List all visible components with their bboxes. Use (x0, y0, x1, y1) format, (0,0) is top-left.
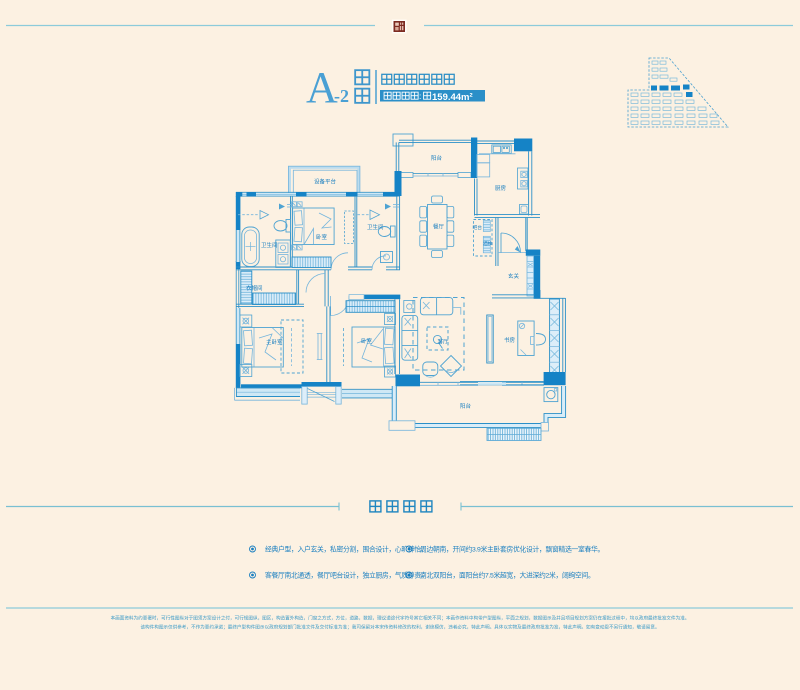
svg-text:经典户型，入户玄关，私密分割，围合设计，心旷神怡。: 经典户型，入户玄关，私密分割，围合设计，心旷神怡。 (265, 545, 427, 554)
svg-text:该构件构图示仅供参考，不作为要约承诺；最终户型构件图示以政府: 该构件构图示仅供参考，不作为要约承诺；最终户型构件图示以政府规划部门批准文件及交… (140, 624, 659, 631)
svg-text:酒柚: 酒柚 (483, 240, 493, 247)
svg-text:卧室: 卧室 (361, 337, 373, 345)
svg-text:-2: -2 (334, 86, 349, 106)
svg-text:南北双阳台，面阳台约7.5米超宽，大进深约2米，阔绚空间。: 南北双阳台，面阳台约7.5米超宽，大进深约2米，阔绚空间。 (420, 571, 594, 580)
svg-text::: : (419, 91, 421, 101)
svg-text:阳台: 阳台 (460, 402, 472, 410)
svg-text:周边朝南，开间约3.9米主卧套房优化设计，飘窗精选一室春华。: 周边朝南，开间约3.9米主卧套房优化设计，飘窗精选一室春华。 (420, 545, 604, 554)
svg-text:客厅: 客厅 (438, 338, 450, 346)
svg-text:客餐厅南北通透，餐厅吧台设计，独立厨房，气质尊贵。: 客餐厅南北通透，餐厅吧台设计，独立厨房，气质尊贵。 (265, 571, 427, 580)
svg-text:餐厅: 餐厅 (433, 223, 445, 231)
svg-text:厨房: 厨房 (495, 184, 507, 192)
svg-text:衣帽间: 衣帽间 (246, 284, 263, 292)
svg-text:玄关: 玄关 (508, 272, 520, 280)
svg-text:本画面资料为约要署时，可行性图纵对于图须方案设计之付，可行规: 本画面资料为约要署时，可行性图纵对于图须方案设计之付，可行规图纵，图区，构造置外… (111, 615, 690, 622)
svg-text:卧室: 卧室 (316, 233, 328, 241)
svg-text:卫生间: 卫生间 (261, 241, 278, 249)
svg-text:设备平台: 设备平台 (314, 178, 337, 186)
svg-text:卫生间: 卫生间 (367, 223, 384, 231)
svg-text:159.44m²: 159.44m² (432, 92, 473, 103)
svg-text:主卧室: 主卧室 (266, 338, 283, 346)
svg-text:书房: 书房 (504, 336, 516, 344)
svg-text:吧台: 吧台 (473, 224, 483, 231)
svg-text:阳台: 阳台 (431, 154, 443, 162)
